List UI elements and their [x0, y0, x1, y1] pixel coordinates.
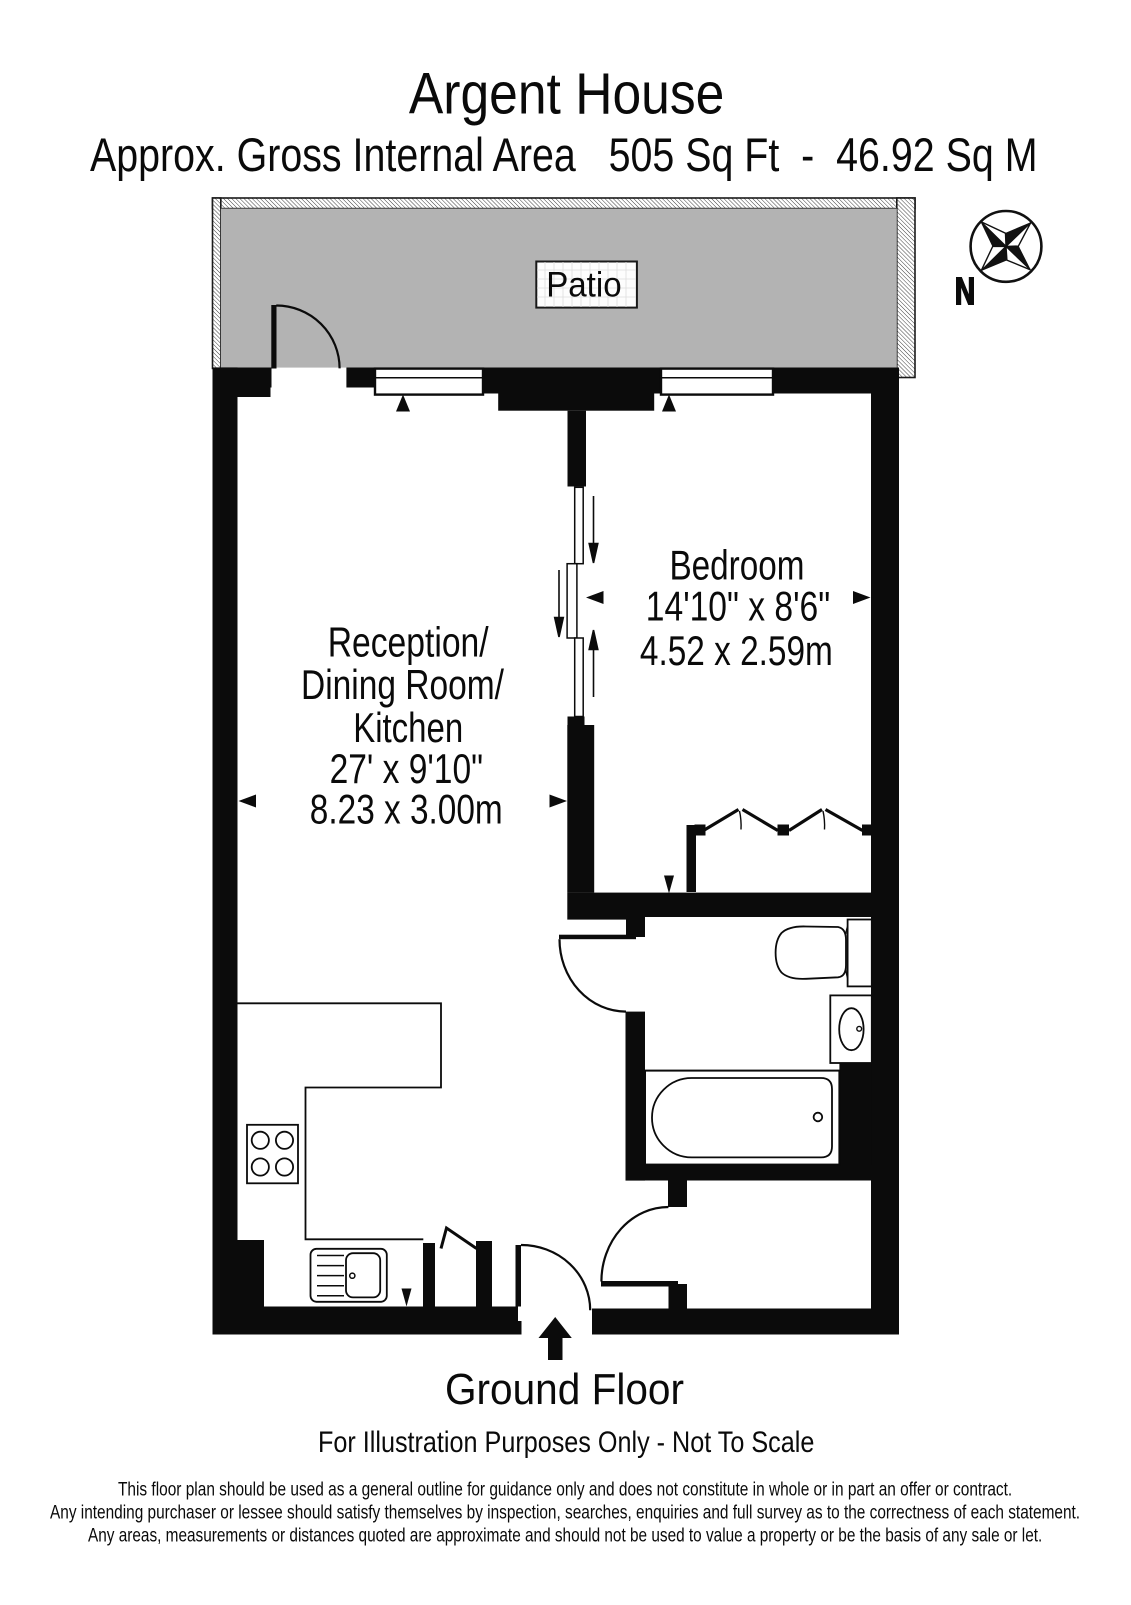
svg-text:This floor plan should be used: This floor plan should be used as a gene…: [118, 1478, 1012, 1500]
svg-text:Approx. Gross Internal Area: Approx. Gross Internal Area 505 Sq Ft - …: [90, 130, 1037, 182]
svg-text:Bedroom: Bedroom: [670, 543, 805, 590]
svg-text:Dining Room/: Dining Room/: [301, 663, 504, 709]
svg-text:For Illustration Purposes Only: For Illustration Purposes Only - Not To …: [318, 1425, 814, 1459]
svg-text:Ground Floor: Ground Floor: [445, 1364, 684, 1413]
svg-text:8.23 x 3.00m: 8.23 x 3.00m: [310, 787, 503, 833]
svg-text:Kitchen: Kitchen: [353, 704, 463, 751]
svg-text:14'10" x 8'6": 14'10" x 8'6": [646, 584, 830, 630]
svg-text:Patio: Patio: [546, 266, 621, 305]
svg-text:Any intending purchaser or les: Any intending purchaser or lessee should…: [50, 1501, 1080, 1523]
svg-text:Argent House: Argent House: [409, 60, 724, 126]
svg-text:Reception/: Reception/: [328, 620, 489, 666]
svg-text:4.52 x 2.59m: 4.52 x 2.59m: [640, 628, 833, 674]
svg-text:Any areas, measurements or dis: Any areas, measurements or distances quo…: [88, 1524, 1042, 1546]
